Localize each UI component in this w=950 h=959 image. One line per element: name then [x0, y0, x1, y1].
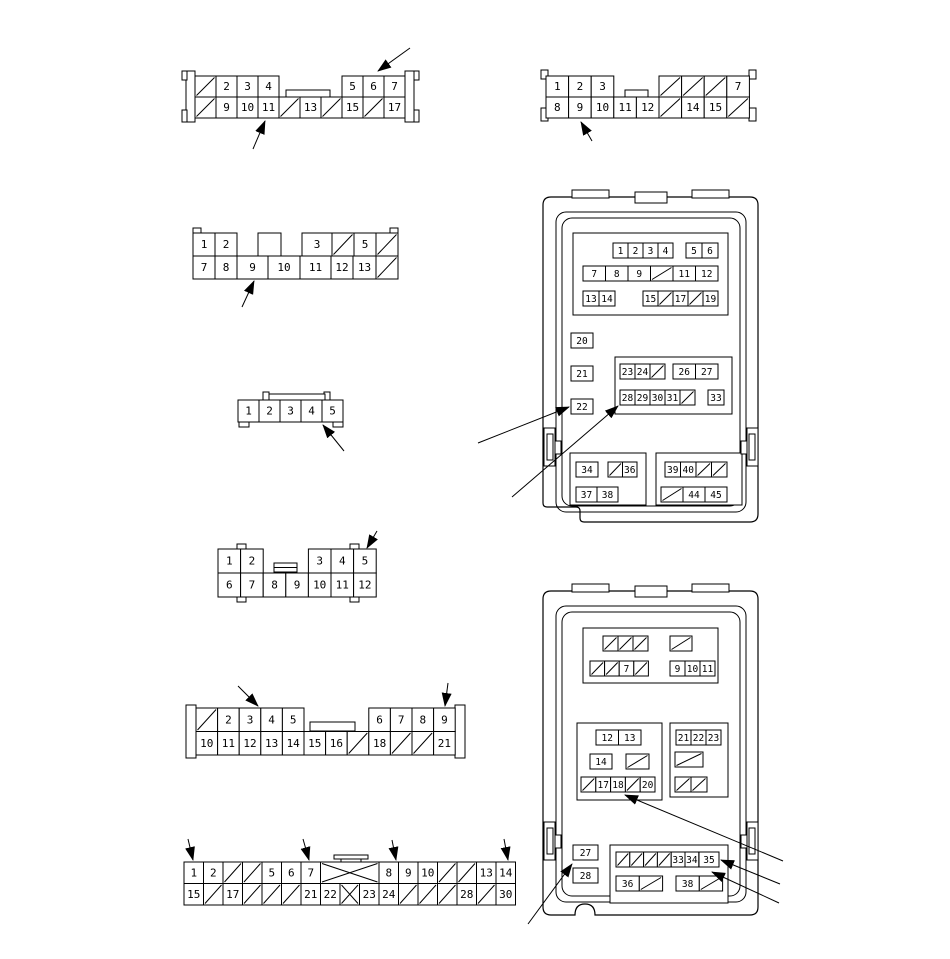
pin-number: 11	[262, 101, 275, 114]
fuse-box-upper: 1234567891112131415171920212223242627282…	[543, 190, 758, 522]
pin-number: 2	[223, 80, 230, 93]
pin-number: 17	[388, 101, 401, 114]
fuse-number: 23	[622, 367, 633, 378]
pin-number: 11	[618, 101, 631, 114]
pin-number: 8	[223, 261, 230, 274]
callout-arrow-connector-1-pin-11	[253, 121, 265, 149]
fuse-number: 39	[667, 465, 679, 476]
fuse-number: 13	[624, 733, 635, 744]
fuse-number: 28	[580, 871, 592, 882]
pin-number: 8	[554, 101, 561, 114]
fuse-number: 37	[581, 490, 592, 501]
pin-number: 21	[304, 888, 317, 901]
pin-number: 7	[398, 713, 405, 726]
callout-arrow-connector-7-pin-1	[188, 839, 193, 860]
pin-number: 3	[599, 80, 606, 93]
pin-number: 3	[314, 238, 321, 251]
fuse-number: 23	[708, 733, 719, 744]
fuse-number: 35	[703, 855, 714, 866]
pin-number: 8	[385, 866, 392, 879]
pin-number: 21	[438, 737, 451, 750]
pin-number: 10	[421, 866, 434, 879]
connector-4-housing-part	[239, 422, 249, 427]
fuse-box-upper-panel	[749, 434, 755, 460]
fuse-number: 21	[576, 369, 588, 380]
fuse-number: 33	[710, 393, 721, 404]
fuse-number: 5	[691, 246, 697, 257]
connector-3-housing-part	[390, 228, 398, 233]
fuse-number: 9	[636, 269, 642, 280]
diagram-page: 2345679101113151712378910111214151235789…	[0, 0, 950, 959]
pin-number: 10	[200, 737, 213, 750]
fuse-number: 22	[576, 402, 587, 413]
fuse-number: 2	[633, 246, 639, 257]
fuse-number: 14	[595, 757, 607, 768]
connector-3: 123578910111213	[193, 228, 398, 279]
pin-number: 9	[405, 866, 412, 879]
pin-number: 14	[287, 737, 301, 750]
fuse-number: 44	[688, 490, 700, 501]
pin-number: 2	[210, 866, 217, 879]
connector-2-housing-part	[749, 70, 756, 79]
pin-number: 4	[308, 405, 315, 418]
fuse-number: 7	[591, 269, 597, 280]
fuse-box-lower-panel	[635, 586, 667, 597]
connector-4-housing-part	[269, 394, 325, 400]
connector-4-housing-part	[333, 422, 343, 427]
fuse-number: 34	[581, 465, 593, 476]
callout-arrow-connector-7-pin-7	[303, 839, 309, 860]
pin-number: 5	[362, 238, 369, 251]
connector-6: 23456789101112131415161821	[186, 705, 465, 758]
pin-number: 7	[735, 80, 742, 93]
pin-number: 6	[226, 579, 233, 592]
pin-number: 6	[288, 866, 295, 879]
fuse-number: 12	[602, 733, 613, 744]
pin-number: 10	[596, 101, 609, 114]
callout-arrow-connector-6-pin-4	[238, 686, 258, 706]
pin-number: 30	[499, 888, 512, 901]
fuse-number: 28	[622, 393, 634, 404]
pin-number: 1	[190, 866, 197, 879]
pin-number: 9	[441, 713, 448, 726]
pin-number: 12	[641, 101, 654, 114]
fuse-number: 9	[675, 664, 681, 675]
fuse-number: 11	[702, 664, 714, 675]
pin-number: 6	[370, 80, 377, 93]
pin-number: 12	[243, 737, 256, 750]
fuse-number: 3	[648, 246, 654, 257]
pin-cell	[258, 233, 281, 256]
fuse-number: 1	[618, 246, 624, 257]
pin-number: 13	[480, 866, 493, 879]
callout-arrow-connector-7-pin-14	[504, 839, 508, 860]
fuse-number: 8	[614, 269, 620, 280]
pin-number: 14	[499, 866, 513, 879]
fuse-box-lower: 79101112131417182021222327283334353638	[543, 584, 758, 915]
fuse-number: 30	[652, 393, 664, 404]
pin-number: 9	[223, 101, 230, 114]
fuse-box-lower-panel	[555, 835, 561, 848]
pin-number: 12	[335, 261, 348, 274]
callout-arrow-connector-4-pin-4	[323, 425, 344, 451]
fuse-number: 4	[663, 246, 669, 257]
pin-number: 14	[686, 101, 700, 114]
pin-number: 5	[290, 713, 297, 726]
callout-arrow-connector-1-pin-6	[378, 48, 410, 71]
connector-fuse-diagram: 2345679101113151712378910111214151235789…	[0, 0, 950, 959]
pin-number: 10	[241, 101, 254, 114]
pin-number: 4	[339, 555, 346, 568]
pin-number: 7	[201, 261, 208, 274]
pin-number: 6	[376, 713, 383, 726]
pin-number: 15	[709, 101, 722, 114]
pin-number: 2	[577, 80, 584, 93]
fuse-number: 10	[687, 664, 699, 675]
pin-number: 11	[309, 261, 322, 274]
fuse-number: 19	[705, 294, 717, 305]
pin-number: 3	[247, 713, 254, 726]
fuse-number: 29	[637, 393, 649, 404]
fuse-number: 6	[707, 246, 713, 257]
fuse-number: 20	[642, 780, 654, 791]
pin-number: 9	[294, 579, 301, 592]
fuse-number: 20	[576, 336, 588, 347]
fuse-box-upper-panel	[572, 190, 609, 198]
pin-number: 2	[266, 405, 273, 418]
connector-4: 12345	[238, 392, 343, 427]
connector-1: 23456791011131517	[182, 71, 419, 122]
pin-number: 5	[349, 80, 356, 93]
connector-1-housing-part	[182, 110, 187, 122]
fuse-number: 22	[693, 733, 704, 744]
pin-number: 13	[304, 101, 317, 114]
fuse-number: 14	[601, 294, 613, 305]
fuse-number: 21	[678, 733, 690, 744]
fuse-number: 40	[683, 465, 695, 476]
connector-5-housing-part	[350, 597, 359, 602]
pin-number: 2	[249, 555, 256, 568]
fuse-number: 27	[580, 848, 591, 859]
pin-number: 13	[358, 261, 371, 274]
pin-number: 22	[324, 888, 337, 901]
pin-number: 17	[226, 888, 239, 901]
pin-number: 3	[287, 405, 294, 418]
pin-number: 1	[201, 238, 208, 251]
pin-number: 1	[554, 80, 561, 93]
fuse-number: 33	[672, 855, 683, 866]
connector-2: 1237891011121415	[541, 70, 756, 121]
pin-number: 16	[330, 737, 343, 750]
fuse-number: 36	[622, 879, 634, 890]
pin-number: 8	[419, 713, 426, 726]
connector-1-housing-part	[414, 71, 419, 80]
pin-number: 5	[362, 555, 369, 568]
pin-number: 11	[336, 579, 349, 592]
connector-5-housing-part	[350, 544, 359, 549]
fuse-number: 7	[624, 664, 630, 675]
pin-number: 5	[329, 405, 336, 418]
fuse-box-lower-panel	[572, 584, 609, 592]
connector-1-housing-part	[286, 90, 330, 97]
pin-number: 7	[307, 866, 314, 879]
pin-number: 3	[316, 555, 323, 568]
fuse-box-upper-panel	[635, 192, 667, 203]
connector-5-housing-part	[237, 544, 246, 549]
pin-number: 2	[225, 713, 232, 726]
fuse-number: 15	[645, 294, 656, 305]
callout-arrow-connector-6-pin-9	[445, 683, 448, 706]
fuse-box-upper-panel	[555, 441, 561, 454]
fuse-number: 13	[585, 294, 596, 305]
pin-number: 13	[265, 737, 278, 750]
connector-1-housing-part	[414, 110, 419, 122]
pin-number: 2	[223, 238, 230, 251]
connector-5-housing-part	[237, 597, 246, 602]
connector-4-housing-part	[263, 392, 269, 400]
pin-number: 1	[245, 405, 252, 418]
fuse-number: 36	[624, 465, 636, 476]
connector-1-housing-part	[182, 71, 187, 80]
pin-number: 10	[313, 579, 326, 592]
fuse-box-upper-panel	[692, 190, 729, 198]
pin-number: 5	[268, 866, 275, 879]
connector-3-housing-part	[193, 228, 201, 233]
pin-number: 8	[271, 579, 278, 592]
pin-number: 12	[358, 579, 371, 592]
fuse-number: 18	[612, 780, 624, 791]
fuse-number: 17	[597, 780, 608, 791]
callout-arrow-connector-3-pin-9	[242, 281, 254, 307]
fuse-number: 31	[667, 393, 679, 404]
fuse-number: 27	[701, 367, 712, 378]
pin-number: 1	[226, 555, 233, 568]
connector-7-housing-part	[334, 855, 368, 859]
pin-number: 15	[346, 101, 359, 114]
pin-number: 23	[363, 888, 376, 901]
pin-number: 15	[308, 737, 321, 750]
connector-6-housing-part	[310, 722, 355, 731]
fuse-box-upper-panel	[547, 434, 553, 460]
pin-number: 10	[277, 261, 290, 274]
fuse-number: 24	[637, 367, 649, 378]
pin-number: 9	[577, 101, 584, 114]
connector-5: 123456789101112	[218, 544, 376, 602]
pin-number: 15	[187, 888, 200, 901]
fuse-number: 38	[602, 490, 614, 501]
connector-6-housing-part	[455, 705, 465, 758]
fuse-number: 11	[679, 269, 691, 280]
connector-2-housing-part	[749, 108, 756, 121]
fuse-box-lower-panel	[692, 584, 729, 592]
connector-6-housing-part	[186, 705, 196, 758]
connector-7: 12567891013141517212223242830	[184, 855, 516, 905]
fuse-number: 38	[682, 879, 694, 890]
fuse-number: 26	[679, 367, 691, 378]
pin-number: 11	[222, 737, 235, 750]
fuse-number: 17	[675, 294, 686, 305]
callout-arrow-connector-7-pin-8	[392, 840, 396, 860]
pin-number: 3	[244, 80, 251, 93]
connector-1-housing-part	[405, 71, 414, 122]
pin-number: 4	[265, 80, 272, 93]
pin-number: 7	[391, 80, 398, 93]
callout-arrow-connector-2-pin-9	[581, 122, 592, 141]
connector-2-housing-part	[625, 90, 648, 97]
fuse-number: 34	[686, 855, 698, 866]
fuse-box-lower-panel	[749, 828, 755, 854]
pin-number: 24	[382, 888, 396, 901]
pin-number: 28	[460, 888, 473, 901]
pin-number: 7	[249, 579, 256, 592]
pin-number: 18	[373, 737, 386, 750]
pin-number: 9	[249, 261, 256, 274]
fuse-number: 12	[701, 269, 712, 280]
callout-arrow-connector-5-pin-5	[367, 531, 377, 548]
pin-number: 4	[268, 713, 275, 726]
fuse-box-lower-panel	[547, 828, 553, 854]
fuse-number: 45	[710, 490, 721, 501]
fuse-box-upper-panel	[741, 441, 747, 454]
